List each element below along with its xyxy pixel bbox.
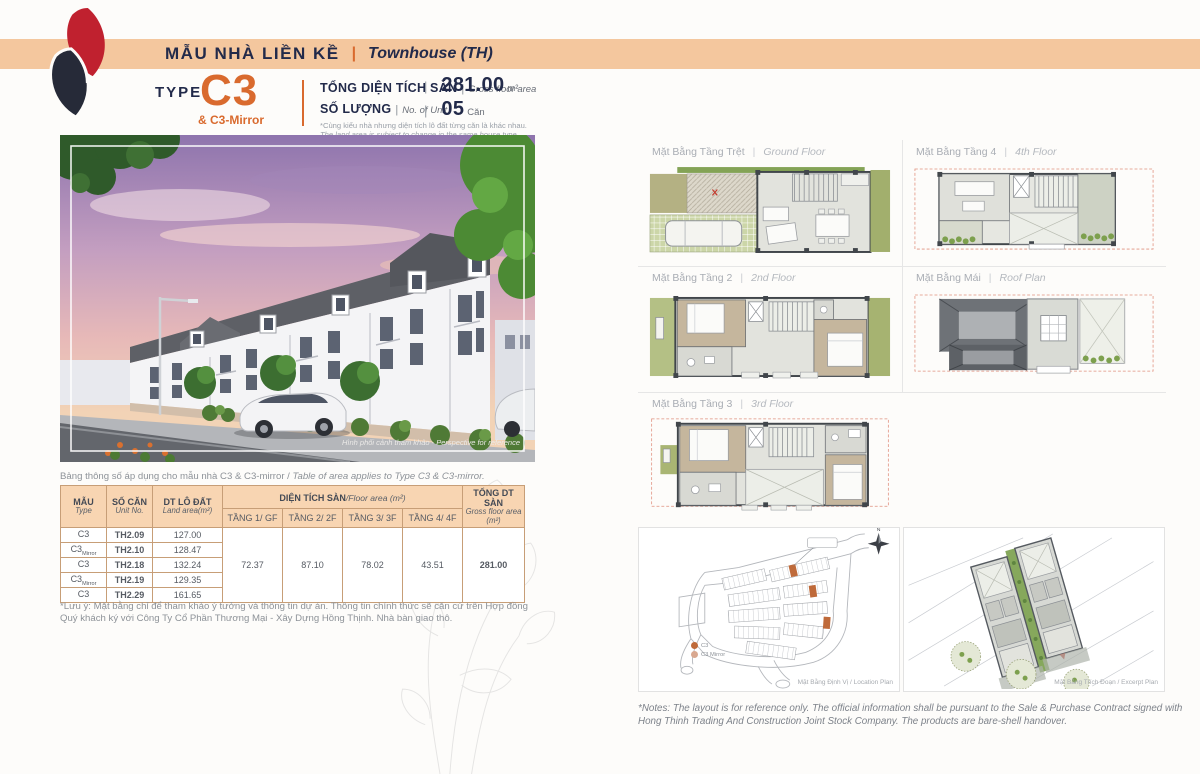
spec-values: |281.00m² |05Căn bbox=[424, 75, 518, 123]
col-header-unit: SỐ CĂNUnit No. bbox=[107, 486, 153, 528]
cell-type: C3 bbox=[61, 528, 107, 543]
type-code: C3 bbox=[200, 66, 258, 116]
type-divider bbox=[302, 80, 304, 126]
col-header-floor-area: DIỆN TÍCH SÀN/Floor area (m²) bbox=[223, 486, 463, 509]
cell-land: 127.00 bbox=[153, 528, 223, 543]
legend-label: C3 bbox=[701, 643, 708, 649]
cell-land: 129.35 bbox=[153, 573, 223, 588]
col-header-type: MẪUType bbox=[61, 486, 107, 528]
bar: | bbox=[395, 104, 398, 116]
cell-unit: TH2.10 bbox=[107, 543, 153, 558]
brand-logo bbox=[42, 6, 120, 121]
bar: | bbox=[424, 103, 427, 118]
third-floor-plan bbox=[648, 416, 892, 513]
title-separator: | bbox=[352, 45, 356, 63]
gfa-unit: m² bbox=[507, 83, 518, 94]
fourth-floor-plan bbox=[912, 164, 1156, 257]
plan-label: Mặt Bằng Mái|Roof Plan bbox=[902, 272, 1166, 284]
bar: | bbox=[424, 79, 427, 94]
area-table: MẪUType SỐ CĂNUnit No. DT LÔ ĐẤTLand are… bbox=[60, 485, 525, 603]
type-sub-label: & C3-Mirror bbox=[198, 113, 264, 127]
table-caption: Bảng thông số áp dụng cho mẫu nhà C3 & C… bbox=[60, 471, 485, 482]
legend-item-c3-mirror: C3 Mirror bbox=[691, 650, 725, 659]
col-header-f4: TẦNG 4/ 4F bbox=[403, 509, 463, 528]
grid-divider-horizontal-1 bbox=[638, 266, 1166, 267]
cell-type: C3Mirror bbox=[61, 573, 107, 588]
legend-item-c3: C3 bbox=[691, 641, 725, 650]
cell-floor1: 72.37 bbox=[223, 528, 283, 603]
title-english: Townhouse (TH) bbox=[368, 45, 493, 63]
col-header-total: TỔNG DT SÀNGross floor area (m²) bbox=[463, 486, 525, 528]
cell-floor2: 87.10 bbox=[283, 528, 343, 603]
legend-dot-c3-icon bbox=[691, 642, 698, 649]
perspective-render: Hình phối cảnh tham khảo - Perspective f… bbox=[60, 135, 535, 462]
title-vietnamese: MẪU NHÀ LIỀN KỀ bbox=[165, 44, 340, 64]
brochure-page: MẪU NHÀ LIỀN KỀ | Townhouse (TH) TYPE C3… bbox=[0, 0, 1200, 774]
col-header-f2: TẦNG 2/ 2F bbox=[283, 509, 343, 528]
type-label: TYPE bbox=[155, 84, 202, 101]
second-floor-plan bbox=[648, 290, 892, 383]
ground-floor-plan bbox=[648, 164, 892, 257]
unit-value-line: |05Căn bbox=[424, 99, 518, 123]
gfa-value-line: |281.00m² bbox=[424, 75, 518, 99]
col-header-land: DT LÔ ĐẤTLand area(m²) bbox=[153, 486, 223, 528]
col-header-f3: TẦNG 3/ 3F bbox=[343, 509, 403, 528]
location-legend: C3 C3 Mirror bbox=[691, 641, 725, 659]
cell-type: C3 bbox=[61, 558, 107, 573]
cell-unit: TH2.09 bbox=[107, 528, 153, 543]
cell-unit: TH2.18 bbox=[107, 558, 153, 573]
unit-count-unit: Căn bbox=[467, 107, 484, 118]
excerpt-plan-box: Mặt Bằng Trích Đoạn / Excerpt Plan bbox=[903, 527, 1165, 692]
table-note: *Lưu ý: Mặt bằng chỉ để tham khảo ý tưởn… bbox=[60, 601, 538, 626]
plan-label: Mặt Bằng Tầng 2|2nd Floor bbox=[638, 272, 902, 284]
footer-note: *Notes: The layout is for reference only… bbox=[638, 702, 1190, 728]
cell-floor4: 43.51 bbox=[403, 528, 463, 603]
cell-total: 281.00 bbox=[463, 528, 525, 603]
plan-3rd-floor: Mặt Bằng Tầng 3|3rd Floor bbox=[638, 398, 902, 513]
cell-type: C3Mirror bbox=[61, 543, 107, 558]
roof-plan bbox=[912, 290, 1156, 383]
cell-floor3: 78.02 bbox=[343, 528, 403, 603]
legend-dot-c3-mirror-icon bbox=[691, 651, 698, 658]
plan-label: Mặt Bằng Tầng 3|3rd Floor bbox=[638, 398, 902, 410]
unit-label-vi: SỐ LƯỢNG bbox=[320, 102, 391, 116]
plan-4th-floor: Mặt Bằng Tầng 4|4th Floor bbox=[902, 146, 1166, 257]
plan-roof: Mặt Bằng Mái|Roof Plan bbox=[902, 272, 1166, 383]
unit-count-value: 05 bbox=[441, 98, 464, 120]
location-plan-art: N bbox=[639, 528, 897, 689]
plan-label: Mặt Bằng Tầng 4|4th Floor bbox=[902, 146, 1166, 158]
table-caption-en: Table of area applies to Type C3 & C3-mi… bbox=[293, 471, 485, 482]
table-caption-vi: Bảng thông số áp dụng cho mẫu nhà C3 & C… bbox=[60, 471, 293, 482]
svg-text:N: N bbox=[877, 528, 881, 533]
page-title: MẪU NHÀ LIỀN KỀ | Townhouse (TH) bbox=[165, 39, 493, 69]
grid-divider-horizontal-2 bbox=[638, 392, 1166, 393]
table-row: C3 TH2.09 127.00 72.37 87.10 78.02 43.51… bbox=[61, 528, 525, 543]
gfa-value: 281.00 bbox=[441, 74, 504, 96]
excerpt-plan-caption: Mặt Bằng Trích Đoạn / Excerpt Plan bbox=[1054, 679, 1158, 686]
col-header-f1: TẦNG 1/ GF bbox=[223, 509, 283, 528]
render-art: Hình phối cảnh tham khảo - Perspective f… bbox=[60, 135, 535, 462]
cell-land: 132.24 bbox=[153, 558, 223, 573]
location-plan-caption: Mặt Bằng Định Vị / Location Plan bbox=[798, 679, 893, 686]
cell-unit: TH2.19 bbox=[107, 573, 153, 588]
plan-2nd-floor: Mặt Bằng Tầng 2|2nd Floor bbox=[638, 272, 902, 383]
render-caption-svg: Hình phối cảnh tham khảo - Perspective f… bbox=[342, 438, 520, 447]
location-plan-box: N C3 C3 Mirror Mặt Bằng Định Vị / Locati… bbox=[638, 527, 900, 692]
compass-icon: N bbox=[868, 528, 890, 555]
plan-label: Mặt Bằng Tầng Trệt|Ground Floor bbox=[638, 146, 902, 158]
excerpt-plan-art bbox=[904, 528, 1162, 689]
plan-ground-floor: Mặt Bằng Tầng Trệt|Ground Floor bbox=[638, 146, 902, 257]
cell-land: 128.47 bbox=[153, 543, 223, 558]
legend-label: C3 Mirror bbox=[701, 652, 725, 658]
